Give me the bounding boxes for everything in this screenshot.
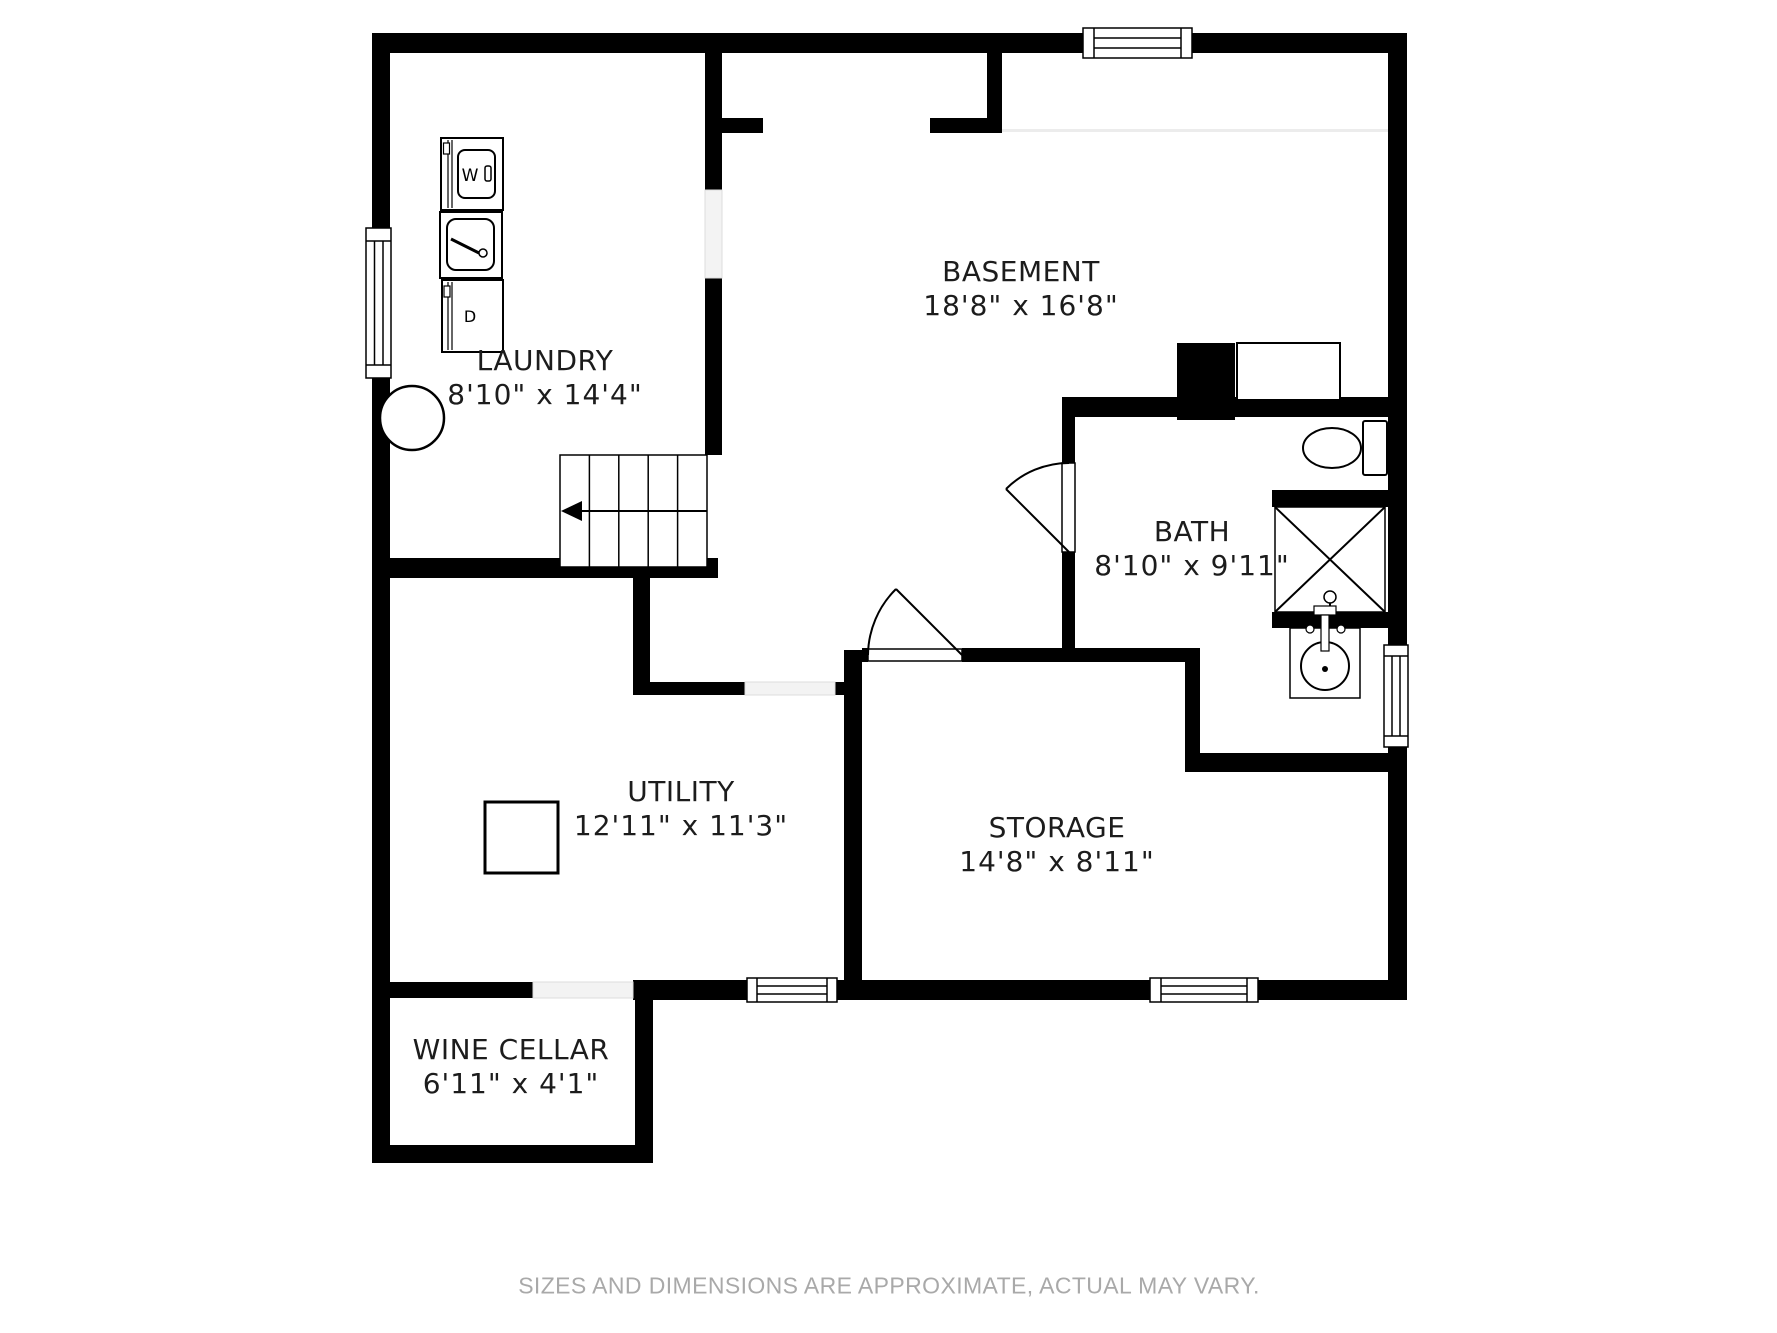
- disclaimer-text: SIZES AND DIMENSIONS ARE APPROXIMATE, AC…: [518, 1273, 1260, 1300]
- dryer-label: D: [464, 307, 476, 326]
- shower-fixture: [1275, 507, 1385, 622]
- stairs: [560, 455, 707, 567]
- opening-utility: [745, 682, 835, 695]
- wall-storage-top: [962, 648, 1200, 662]
- dryer-fixture: D: [442, 280, 503, 352]
- faucet-icon: [1314, 606, 1336, 615]
- room-dimensions: 14'8" x 8'11": [959, 845, 1154, 879]
- room-dimensions: 12'11" x 11'3": [574, 809, 788, 843]
- wall-laundry-divider-lower: [705, 278, 722, 455]
- opening-wine-cellar: [533, 982, 633, 998]
- wall-nook-stub-right: [930, 118, 1002, 133]
- floor-plan-svg: W D: [0, 0, 1777, 1333]
- floor-plan-page: { "footer": { "disclaimer": "SIZES AND D…: [0, 0, 1777, 1333]
- room-name: UTILITY: [574, 775, 788, 809]
- cased-openings: [533, 190, 835, 998]
- room-name: WINE CELLAR: [413, 1033, 610, 1067]
- room-label-laundry: LAUNDRY 8'10" x 14'4": [447, 344, 642, 412]
- wall-top: [372, 33, 1407, 53]
- wall-right: [1388, 33, 1407, 1000]
- room-dimensions: 8'10" x 14'4": [447, 378, 642, 412]
- window-bottom-left-icon: [747, 978, 837, 1002]
- window-top-icon: [1083, 28, 1192, 58]
- furnace-fixture: [485, 802, 558, 873]
- shower-valve-icon: [1324, 591, 1336, 603]
- wall-wine-right: [635, 998, 653, 1163]
- room-name: LAUNDRY: [447, 344, 642, 378]
- wall-utility-right: [633, 578, 650, 695]
- chimney-block: [1177, 343, 1235, 420]
- wall-laundry-divider-upper: [705, 53, 722, 190]
- room-name: STORAGE: [959, 811, 1154, 845]
- washer-fixture: W: [441, 138, 503, 210]
- wall-niche: [1237, 343, 1340, 400]
- room-name: BASEMENT: [923, 255, 1118, 289]
- wall-utility-top: [650, 682, 745, 695]
- window-right-icon: [1384, 645, 1408, 747]
- room-label-basement: BASEMENT 18'8" x 16'8": [923, 255, 1118, 323]
- laundry-sink-fixture: [440, 212, 502, 278]
- wall-bottom-utility: [390, 982, 533, 998]
- water-heater-fixture: [380, 386, 444, 450]
- room-label-storage: STORAGE 14'8" x 8'11": [959, 811, 1154, 879]
- room-label-bath: BATH 8'10" x 9'11": [1094, 515, 1289, 583]
- ceiling-break-line: [1002, 129, 1388, 132]
- window-left-icon: [366, 228, 391, 378]
- wall-shower-top: [1272, 490, 1388, 507]
- wall-storage-left: [844, 650, 862, 998]
- room-dimensions: 18'8" x 16'8": [923, 289, 1118, 323]
- opening-laundry-basement: [705, 190, 722, 278]
- wall-left: [372, 33, 390, 1163]
- window-bottom-right-icon: [1150, 978, 1258, 1002]
- room-label-wine-cellar: WINE CELLAR 6'11" x 4'1": [413, 1033, 610, 1101]
- room-dimensions: 8'10" x 9'11": [1094, 549, 1289, 583]
- room-label-utility: UTILITY 12'11" x 11'3": [574, 775, 788, 843]
- room-name: BATH: [1094, 515, 1289, 549]
- wall-bath-left-lower: [1062, 552, 1075, 662]
- wall-storage-top-sliver: [862, 648, 868, 662]
- door-storage: [868, 589, 962, 661]
- door-bath: [1006, 463, 1075, 552]
- washer-label: W: [462, 166, 479, 186]
- toilet-fixture: [1303, 421, 1387, 475]
- wall-nook-stub-left: [722, 118, 763, 133]
- wall-wine-bottom: [372, 1145, 653, 1163]
- wall-nook-right: [987, 53, 1002, 118]
- wall-sinknook-bottom: [1185, 753, 1388, 772]
- room-dimensions: 6'11" x 4'1": [413, 1067, 610, 1101]
